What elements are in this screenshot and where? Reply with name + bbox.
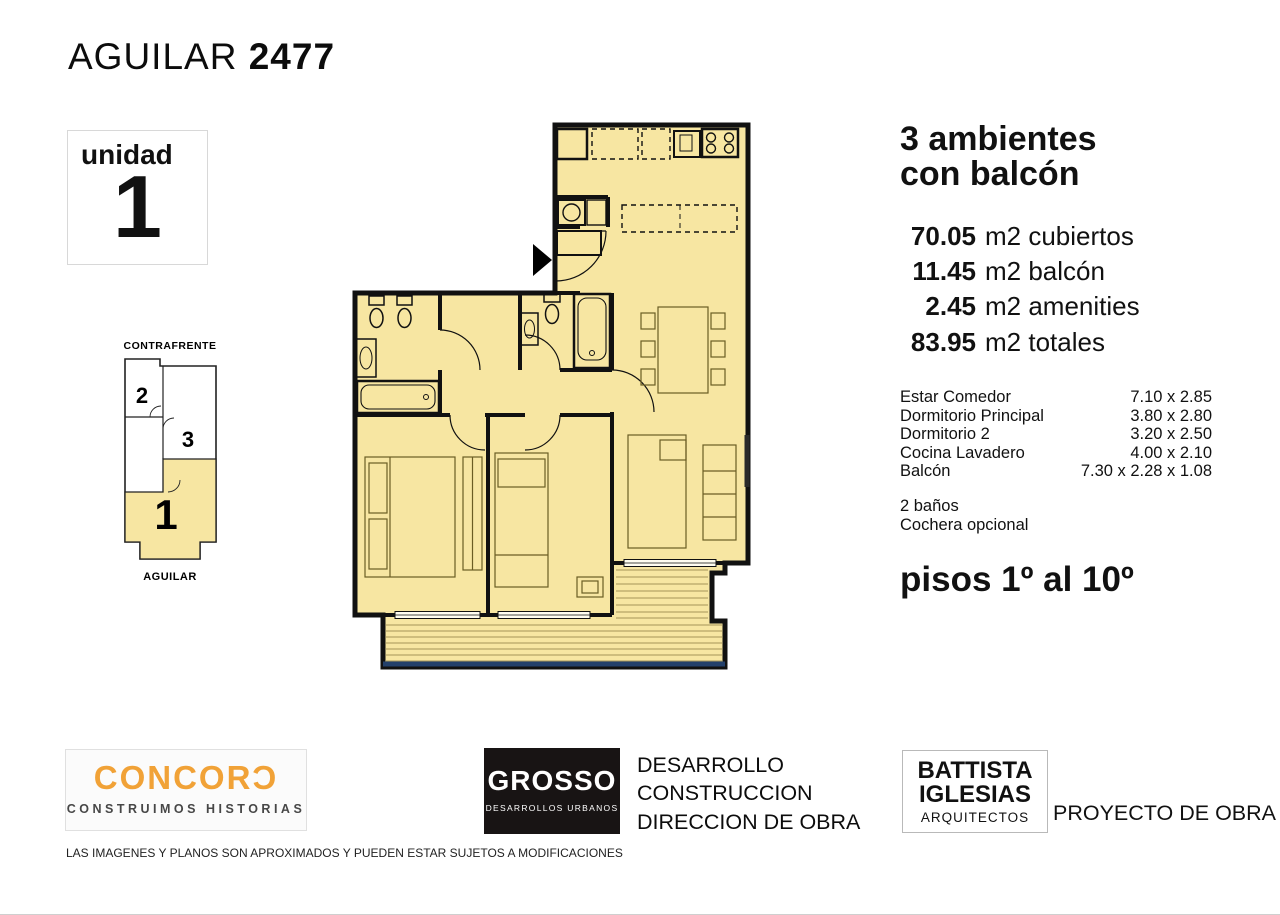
page-title: AGUILAR 2477	[68, 36, 335, 78]
area-value: 11.45	[900, 256, 976, 287]
extras-list: 2 baños Cochera opcional	[900, 497, 1212, 535]
area-row: 70.05 m2 cubiertos	[900, 221, 1212, 252]
room-size: 4.00 x 2.10	[1130, 444, 1212, 463]
area-row: 83.95 m2 totales	[900, 327, 1212, 358]
concord-logo: CONCORƆ CONSTRUIMOS HISTORIAS	[65, 749, 307, 831]
room-name: Dormitorio 2	[900, 425, 990, 444]
title-street: AGUILAR	[68, 36, 249, 77]
area-label: m2 totales	[985, 327, 1105, 358]
window-side	[745, 435, 750, 487]
locator-bottom-label: AGUILAR	[143, 571, 197, 583]
area-label: m2 amenities	[985, 291, 1140, 322]
room-row: Dormitorio Principal 3.80 x 2.80	[900, 407, 1212, 426]
room-size: 3.20 x 2.50	[1130, 425, 1212, 444]
concord-wordmark: CONCORƆ	[66, 759, 306, 797]
battista-line2: IGLESIAS	[903, 783, 1047, 807]
summary-line2: con balcón	[900, 157, 1212, 192]
battista-role: PROYECTO DE OBRA	[1053, 801, 1276, 826]
area-label: m2 cubiertos	[985, 221, 1134, 252]
locator-unit3-label: 3	[182, 427, 194, 452]
locator-map: CONTRAFRENTE 2 3 1 AGUILAR	[118, 337, 223, 585]
grosso-wordmark: GROSSO	[484, 765, 620, 797]
grosso-logo: GROSSO DESARROLLOS URBANOS	[484, 748, 620, 834]
role-line: DESARROLLO	[637, 751, 860, 779]
room-dimensions-table: Estar Comedor 7.10 x 2.85 Dormitorio Pri…	[900, 388, 1212, 481]
concord-tagline: CONSTRUIMOS HISTORIAS	[66, 802, 306, 816]
area-value: 83.95	[900, 327, 976, 358]
floor-plan	[340, 115, 780, 685]
area-label: m2 balcón	[985, 256, 1105, 287]
area-row: 2.45 m2 amenities	[900, 291, 1212, 322]
room-row: Dormitorio 2 3.20 x 2.50	[900, 425, 1212, 444]
disclaimer-text: LAS IMAGENES Y PLANOS SON APROXIMADOS Y …	[66, 846, 623, 860]
entry-arrow-icon	[533, 244, 552, 276]
unit-badge-number: 1	[68, 167, 207, 248]
battista-line3: ARQUITECTOS	[903, 810, 1047, 825]
role-line: CONSTRUCCION	[637, 779, 860, 807]
locator-top-label: CONTRAFRENTE	[124, 340, 217, 352]
room-name: Cocina Lavadero	[900, 444, 1025, 463]
summary-heading: 3 ambientes con balcón	[900, 122, 1212, 192]
room-row: Estar Comedor 7.10 x 2.85	[900, 388, 1212, 407]
extra-item: Cochera opcional	[900, 516, 1212, 535]
room-name: Estar Comedor	[900, 388, 1011, 407]
plan-outline	[355, 125, 748, 667]
area-value: 70.05	[900, 221, 976, 252]
locator-unit2-label: 2	[136, 383, 148, 408]
room-row: Cocina Lavadero 4.00 x 2.10	[900, 444, 1212, 463]
room-name: Balcón	[900, 462, 950, 481]
battista-line1: BATTISTA	[903, 759, 1047, 783]
extra-item: 2 baños	[900, 497, 1212, 516]
areas-list: 70.05 m2 cubiertos 11.45 m2 balcón 2.45 …	[900, 221, 1212, 362]
role-line: DIRECCION DE OBRA	[637, 808, 860, 836]
room-size: 7.10 x 2.85	[1130, 388, 1212, 407]
grosso-tagline: DESARROLLOS URBANOS	[484, 803, 620, 813]
title-number: 2477	[249, 36, 335, 77]
plan-sheet: AGUILAR 2477 unidad 1 CONTRAFRENTE 2 3 1…	[0, 0, 1280, 915]
floors-range: pisos 1º al 10º	[900, 560, 1212, 600]
area-value: 2.45	[900, 291, 976, 322]
room-name: Dormitorio Principal	[900, 407, 1044, 426]
summary-line1: 3 ambientes	[900, 122, 1212, 157]
grosso-roles: DESARROLLO CONSTRUCCION DIRECCION DE OBR…	[637, 751, 860, 836]
unit-badge: unidad 1	[67, 130, 208, 265]
room-row: Balcón 7.30 x 2.28 x 1.08	[900, 462, 1212, 481]
locator-unit1-label: 1	[154, 491, 177, 538]
battista-logo: BATTISTA IGLESIAS ARQUITECTOS	[902, 750, 1048, 833]
room-size: 3.80 x 2.80	[1130, 407, 1212, 426]
room-size: 7.30 x 2.28 x 1.08	[1081, 462, 1212, 481]
area-row: 11.45 m2 balcón	[900, 256, 1212, 287]
